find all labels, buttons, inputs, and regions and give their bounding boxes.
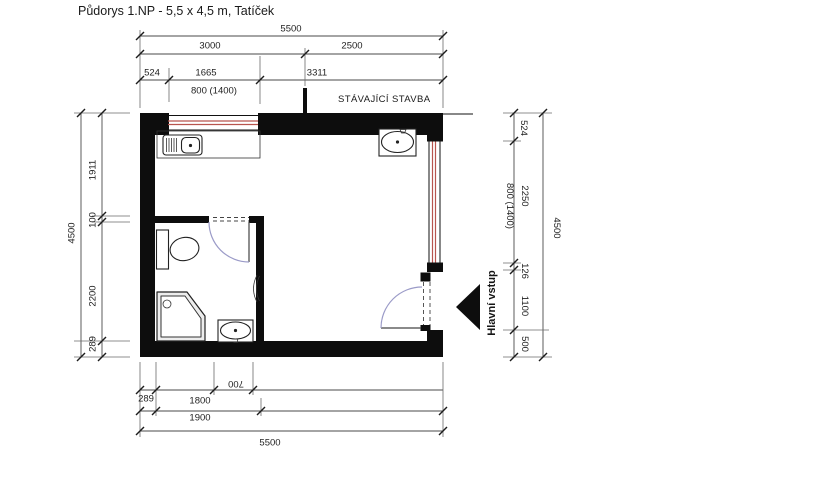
bottom-dimension-lines [136,362,447,437]
dim-bottom-wall: 289 [138,394,154,404]
wall-bottom [140,341,443,357]
door-swing-arc [381,287,422,328]
dim-bottom-bath-width: 1800 [189,396,210,406]
existing-wall-stub [303,88,307,114]
kitchen-counter [157,131,260,158]
washbasin-icon [379,129,416,156]
dim-left-seg3: 2200 [88,285,98,306]
bathroom-door [209,218,249,263]
bath-washbasin-icon [218,320,253,343]
dim-top-right-span: 2500 [341,41,362,51]
wall-right-top [427,113,443,141]
entrance-arrow-icon [456,284,480,330]
bath-door-swing-arc [209,222,249,262]
corner-shower-icon [157,292,205,341]
wall-top-left [140,113,169,135]
door-frame-bottom [421,325,431,331]
kitchen-sink-icon [163,135,202,155]
dim-left-total: 4500 [67,222,77,243]
wall-left [140,113,155,357]
dim-bottom-basin: 700 [228,378,244,388]
dim-right-seg4: 1100 [519,296,529,316]
door-frame-top [421,273,431,282]
dim-right-seg5: 500 [519,336,529,352]
dim-right-seg1: 524 [518,120,528,136]
dim-top-window: 1665 [195,68,216,78]
dim-top-rest: 3311 [307,68,327,78]
dim-right-seg2: 2250 [519,185,529,206]
entrance-door [381,273,431,332]
existing-building-label: STÁVAJÍCÍ STAVBA [338,94,430,105]
toilet-icon [157,230,202,269]
partition-vertical [256,216,264,341]
dim-left-seg1: 1911 [88,160,98,180]
page-title: Půdorys 1.NP - 5,5 x 4,5 m, Tatíček [78,4,274,18]
dim-right-seg3: 126 [519,263,529,279]
main-entrance-label: Hlavní vstup [486,270,498,335]
window-top [168,116,258,131]
dim-left-seg2: 100 [88,212,98,228]
floorplan-page: Půdorys 1.NP - 5,5 x 4,5 m, Tatíček STÁV… [0,0,820,492]
dim-left-seg4: 289 [88,336,98,352]
right-dimension-lines [503,109,552,361]
floorplan-drawing [0,0,820,492]
left-dimension-lines [74,109,130,361]
dim-bottom-total: 5500 [259,438,280,448]
dim-top-left-span: 3000 [199,41,220,51]
dim-top-window-note: 800 (1400) [191,86,237,96]
dim-right-total: 4500 [551,217,561,238]
wall-right-pier [427,263,443,272]
dim-top-total: 5500 [280,24,301,34]
partition-top-left [155,216,209,223]
dim-right-window-note: 800 (1400) [504,183,514,229]
window-right [427,141,443,263]
dim-bottom-bath-outer: 1900 [189,413,210,423]
dim-top-wall: 524 [144,68,160,78]
